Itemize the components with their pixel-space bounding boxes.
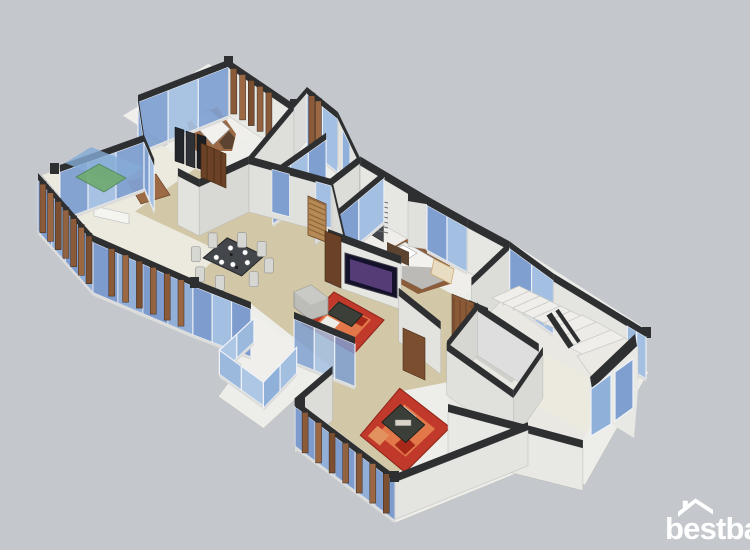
- svg-text:bestba: bestba: [665, 511, 750, 546]
